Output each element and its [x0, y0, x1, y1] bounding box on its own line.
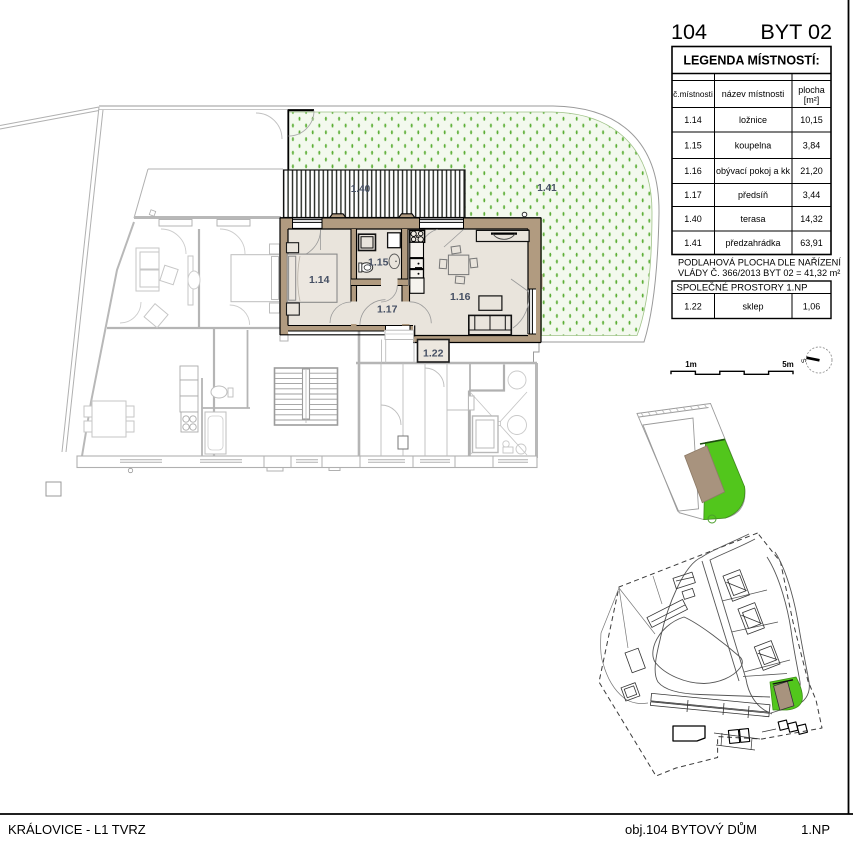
svg-text:název místnosti: název místnosti [722, 89, 785, 99]
svg-text:předzahrádka: předzahrádka [725, 238, 780, 248]
svg-text:ložnice: ložnice [739, 115, 767, 125]
svg-text:terasa: terasa [740, 214, 765, 224]
svg-text:SPOLEČNÉ PROSTORY 1.NP: SPOLEČNÉ PROSTORY 1.NP [677, 283, 808, 294]
svg-text:1.14: 1.14 [309, 274, 330, 286]
svg-text:plocha: plocha [798, 85, 825, 95]
svg-text:1.22: 1.22 [684, 302, 702, 312]
svg-text:1.15: 1.15 [684, 141, 702, 151]
svg-text:1.16: 1.16 [450, 291, 471, 303]
svg-text:104: 104 [671, 19, 707, 44]
svg-text:VLÁDY Č. 366/2013 BYT 02 = 41,: VLÁDY Č. 366/2013 BYT 02 = 41,32 m² [678, 268, 840, 278]
svg-text:BYT 02: BYT 02 [760, 19, 832, 44]
svg-text:LEGENDA MÍSTNOSTÍ:: LEGENDA MÍSTNOSTÍ: [683, 53, 819, 68]
svg-text:KRÁLOVICE - L1 TVRZ: KRÁLOVICE - L1 TVRZ [8, 822, 146, 837]
svg-text:č.místnosti: č.místnosti [673, 89, 713, 99]
svg-text:koupelna: koupelna [735, 141, 772, 151]
svg-text:1,06: 1,06 [803, 302, 821, 312]
svg-text:21,20: 21,20 [800, 166, 823, 176]
svg-text:1.41: 1.41 [684, 238, 702, 248]
svg-text:[m²]: [m²] [804, 95, 820, 105]
svg-text:obj.104 BYTOVÝ DŮM: obj.104 BYTOVÝ DŮM [625, 822, 757, 837]
svg-text:10,15: 10,15 [800, 115, 823, 125]
svg-text:1m: 1m [685, 360, 697, 369]
svg-text:63,91: 63,91 [800, 238, 823, 248]
svg-text:1.17: 1.17 [377, 304, 398, 316]
svg-text:1.22: 1.22 [423, 348, 444, 360]
svg-text:1.NP: 1.NP [801, 822, 830, 837]
svg-text:14,32: 14,32 [800, 214, 823, 224]
svg-text:PODLAHOVÁ PLOCHA DLE NAŘÍZENÍ: PODLAHOVÁ PLOCHA DLE NAŘÍZENÍ [678, 258, 841, 268]
svg-text:5m: 5m [782, 360, 794, 369]
svg-text:1.41: 1.41 [537, 183, 557, 194]
svg-text:1.40: 1.40 [351, 184, 371, 195]
svg-text:obývací pokoj a kk: obývací pokoj a kk [716, 166, 791, 176]
svg-text:1.14: 1.14 [684, 115, 702, 125]
svg-text:3,84: 3,84 [803, 141, 821, 151]
svg-text:1.16: 1.16 [684, 166, 702, 176]
svg-text:předsíň: předsíň [738, 190, 768, 200]
svg-text:sklep: sklep [742, 302, 763, 312]
svg-text:1.40: 1.40 [684, 214, 702, 224]
svg-text:1.17: 1.17 [684, 190, 702, 200]
svg-text:1.15: 1.15 [368, 257, 389, 269]
svg-text:3,44: 3,44 [803, 190, 821, 200]
